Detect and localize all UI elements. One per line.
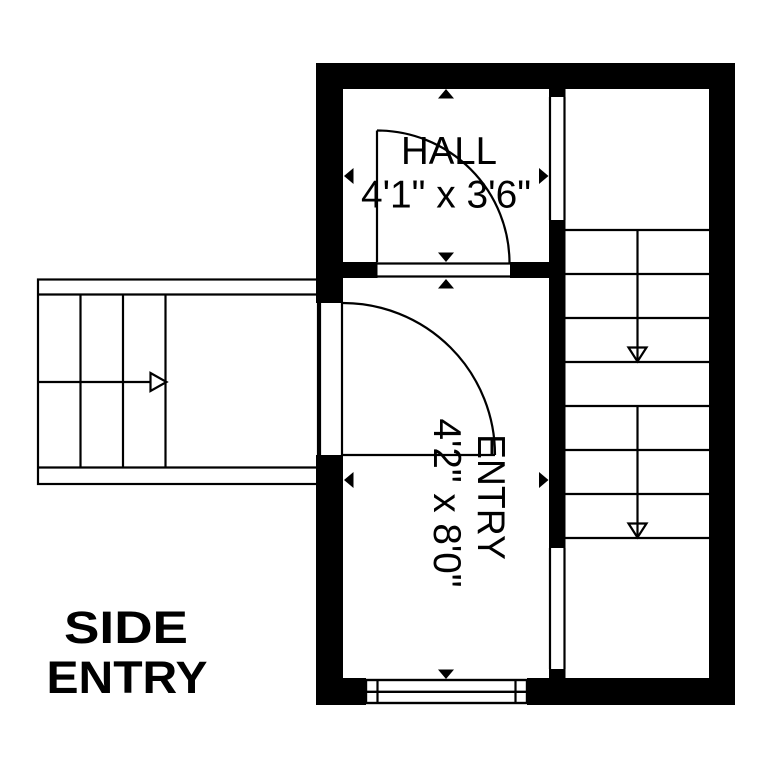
svg-text:ENTRY: ENTRY [47, 652, 208, 703]
svg-text:HALL: HALL [401, 130, 497, 173]
svg-text:4'2" x 8'0": 4'2" x 8'0" [425, 419, 468, 588]
svg-text:ENTRY: ENTRY [469, 434, 512, 560]
svg-text:SIDE: SIDE [64, 602, 188, 653]
svg-text:4'1" x 3'6": 4'1" x 3'6" [361, 174, 531, 217]
